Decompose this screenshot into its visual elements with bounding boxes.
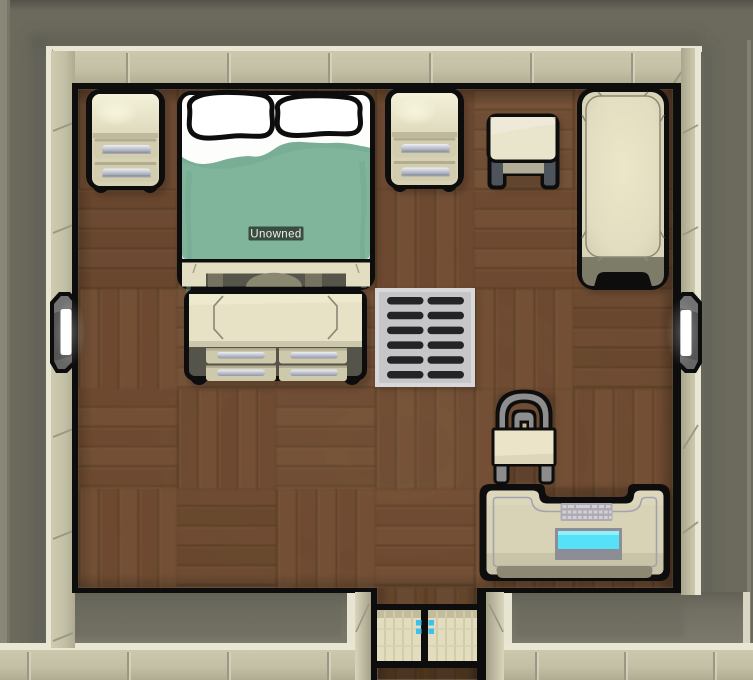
svg-text:Unowned: Unowned (250, 229, 301, 241)
